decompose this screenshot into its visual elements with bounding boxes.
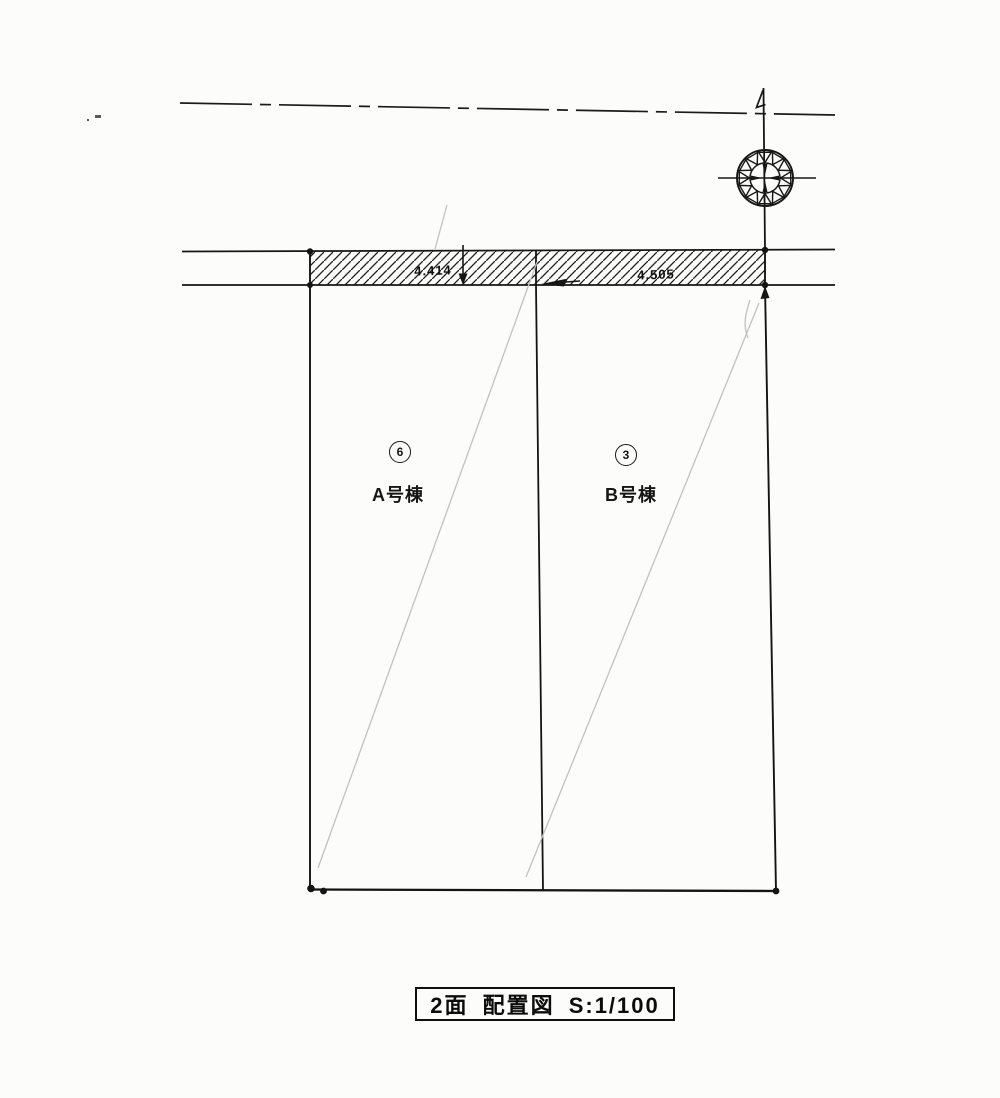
up-arrow-head — [761, 286, 770, 299]
building-label-a: A号棟 — [343, 481, 453, 507]
building-label-b: B号棟 — [576, 481, 686, 507]
site-plan-sheet: 4.414 4.505 6 A号棟 3 B号棟 2面 配置図 S:1/100 — [0, 0, 1000, 1098]
lot-number-badge-b: 3 — [615, 444, 637, 466]
lot-number-b: 3 — [623, 448, 630, 462]
dimension-label-left: 4.414 — [405, 262, 461, 279]
plot-divider-edge — [536, 250, 543, 890]
plot-boundaries — [310, 250, 776, 891]
plot-right-edge — [765, 250, 776, 891]
survey-point-dots — [307, 247, 780, 895]
road-centerline — [180, 103, 835, 115]
scan-speck — [95, 115, 101, 118]
drawing-title-text: 2面 配置図 S:1/100 — [430, 988, 660, 1020]
lot-number-a: 6 — [397, 445, 404, 459]
drawing-title-box: 2面 配置図 S:1/100 — [415, 987, 675, 1021]
plot-bottom-edge — [310, 890, 776, 892]
setback-strip — [182, 250, 835, 286]
scan-speck — [87, 119, 89, 121]
dimension-label-right: 4.505 — [628, 266, 684, 283]
compass-rosette-icon — [718, 150, 816, 206]
lot-number-badge-a: 6 — [389, 441, 411, 463]
left-arrow-tail — [566, 281, 580, 282]
site-plan-linework — [0, 0, 1000, 1098]
